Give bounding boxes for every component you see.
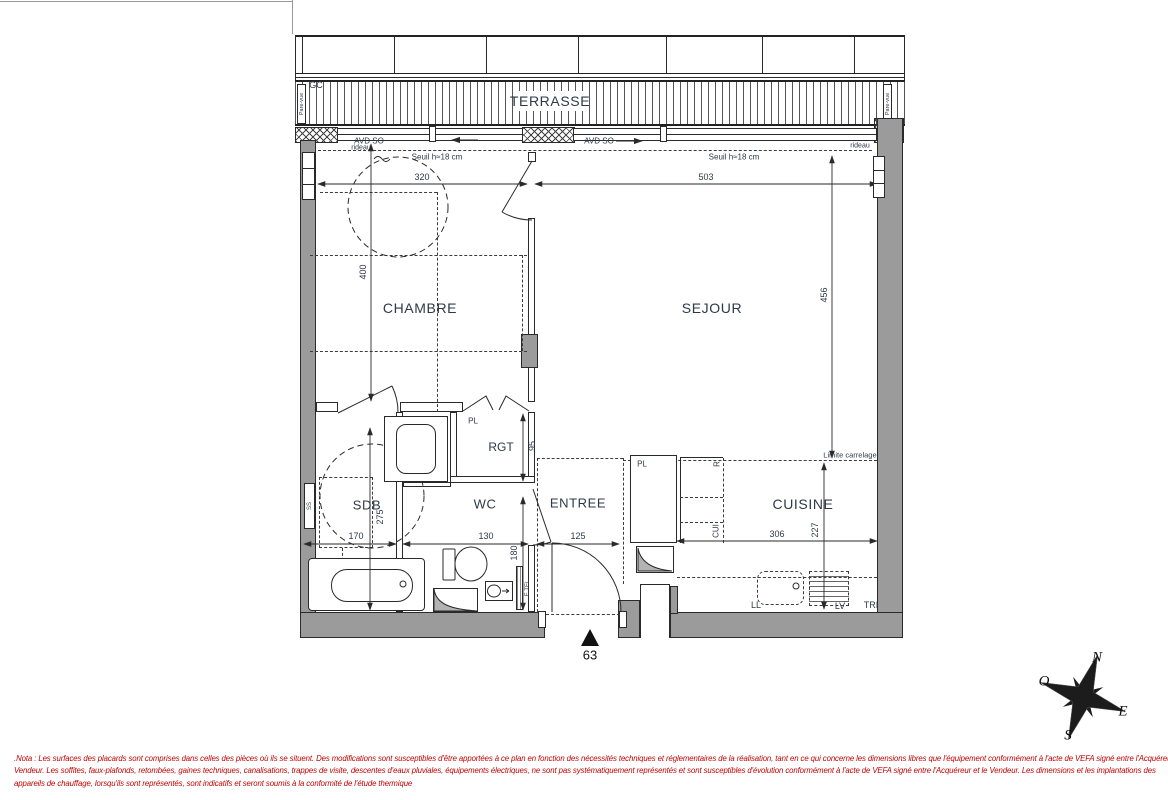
bathtub-inner [331, 569, 413, 602]
room-label-rgt: RGT [488, 440, 513, 454]
strip-divider [302, 35, 303, 73]
wc-handbasin [485, 581, 513, 601]
dim-label-320: 320 [414, 172, 429, 182]
gc-label: GC [309, 80, 323, 90]
partition-chambre-sejour [528, 218, 535, 402]
washbasin-bowl [396, 424, 436, 474]
room-label-chambre: CHAMBRE [383, 300, 457, 316]
partition-chambre-south-a [316, 402, 338, 412]
entrance-jamb-left [538, 611, 546, 628]
compass-rose [1026, 640, 1140, 754]
window-chambre-side-tick [303, 168, 314, 169]
nota-line-1: .Nota : Les surfaces des placards sont c… [14, 753, 1160, 765]
bay-window-chambre-mullion [429, 126, 436, 142]
electrical-panel-label: E.TEL [525, 580, 531, 597]
chambre-dashed-zone [522, 255, 523, 351]
nota-line-2: Vendeur. Les soffites, faux-plafonds, re… [14, 765, 1160, 777]
compass-star-major [1026, 640, 1140, 754]
window-chambre-side-tick [303, 184, 314, 185]
floor-plan-canvas: TERRASSE GC Pare-vue Pare-vue AVD SO rid… [0, 0, 1168, 800]
seuil-label-left: Seuil h≈18 cm [412, 153, 463, 162]
bin-label: TRI [864, 600, 879, 610]
wall-bottom-right [670, 612, 903, 638]
dim-label-95: 95 [527, 441, 537, 451]
kitchen-sink [757, 571, 804, 605]
bay-window-sejour-rail [573, 134, 877, 135]
room-label-wc: WC [474, 497, 497, 512]
counter-label: CUI [712, 524, 721, 538]
compass-star-minor [1053, 667, 1113, 727]
door-sdb-leaf [338, 386, 392, 413]
room-label-terrasse: TERRASSE [510, 93, 590, 109]
dim-label-275: 275 [375, 509, 385, 524]
nota-disclaimer: .Nota : Les surfaces des placards sont c… [14, 753, 1160, 790]
chambre-dashed-zone [310, 255, 527, 256]
seuil-squiggle [374, 157, 390, 162]
fridge-shelf-dashed [680, 497, 723, 498]
dim-label-180: 180 [509, 545, 519, 560]
terrace-edge-line [295, 77, 905, 78]
toilet-bowl [455, 547, 487, 581]
pare-vue-label-left: Pare-vue [299, 93, 305, 115]
terrace-railing [295, 80, 905, 126]
partition-rgt-left [450, 412, 457, 482]
strip-divider [578, 35, 579, 73]
dimension-lines [304, 144, 877, 610]
dim-label-400: 400 [358, 264, 368, 279]
dim-label-170: 170 [348, 531, 363, 541]
strip-divider [486, 35, 487, 73]
dim-label-130: 130 [478, 531, 493, 541]
window-chambre-side [302, 152, 315, 200]
radiator-kitchen [636, 546, 674, 573]
electrical-panel [516, 566, 523, 610]
window-sejour-side [873, 156, 885, 198]
room-label-cuisine: CUISINE [773, 496, 834, 512]
door-jamb-cap [528, 152, 536, 162]
tile-limit-label: Limite carrelage. [823, 451, 878, 460]
service-niche [640, 584, 670, 638]
strip-divider [854, 35, 855, 73]
toilet-tank [443, 549, 455, 580]
entree-dashed-boundary [623, 458, 624, 584]
fridge-label: R [713, 461, 722, 467]
facade-wall-hatch-mid [522, 127, 575, 143]
door-entrance-arc [552, 543, 621, 612]
room-label-sejour: SEJOUR [682, 300, 742, 316]
radiator-wc [433, 588, 478, 612]
towel-dryer-label: SS [307, 502, 313, 510]
entrance-threshold-dashed [546, 614, 620, 615]
closet-label-rgt: PL [468, 417, 478, 426]
partition-under-basin [403, 482, 451, 487]
fridge-column-left [680, 458, 681, 543]
pare-vue-label-right: Pare-vue [885, 93, 891, 115]
strip-divider [394, 35, 395, 73]
window-sejour-side-tick [874, 183, 884, 184]
closet-label-cuisine: PL [637, 460, 647, 469]
compass-east-label: E [1118, 704, 1127, 721]
partition-chambre-south-b [400, 402, 463, 412]
folding-door-rgt [463, 396, 529, 411]
wall-bottom-left [300, 612, 545, 638]
washer-label: LL [751, 600, 761, 610]
nota-line-3: appareils de chauffage, lorsqu'ils sont … [14, 778, 1160, 790]
fridge-shelf-dashed [680, 522, 723, 523]
wall-kitchen-stub [670, 586, 678, 614]
door-chambre-leaf [502, 161, 532, 212]
partition-rgt-bottom [450, 476, 535, 483]
window-sejour-side-tick [874, 170, 884, 171]
sheet-edge-top [0, 1, 292, 2]
strip-divider [762, 35, 763, 73]
rideau-label-right: rideau [850, 143, 869, 150]
upper-floor-strip [295, 35, 905, 74]
dim-label-456: 456 [819, 287, 829, 302]
dim-label-125: 125 [570, 531, 585, 541]
entrance-triangle [581, 629, 599, 646]
turning-circle-chambre [348, 157, 448, 257]
dim-label-503: 503 [698, 172, 713, 182]
dim-label-306: 306 [769, 529, 784, 539]
chambre-dashed-zone [310, 351, 527, 352]
entree-dashed-boundary [537, 458, 538, 612]
fridge-column-right-dashed [723, 458, 724, 543]
strip-divider [666, 35, 667, 73]
room-label-entree: ENTREE [550, 496, 606, 511]
dishwasher-label: LV [835, 601, 845, 611]
chambre-dashed-zone [320, 192, 437, 193]
compass-north-label: N [1092, 650, 1102, 667]
door-sdb-arc [392, 386, 398, 413]
bay-window-sejour-mullion [660, 126, 667, 142]
avd-so-label-right: AVD SO [584, 137, 614, 146]
unit-number-label: 63 [583, 648, 597, 663]
door-wc-arc [533, 542, 551, 545]
seuil-label-right: Seuil h≈18 cm [709, 153, 760, 162]
dim-label-227: 227 [810, 522, 820, 537]
compass-west-label: O [1039, 674, 1050, 691]
sdb-dashed-zone [319, 477, 373, 548]
door-wc-leaf [533, 489, 551, 542]
curtain-track-dashed [318, 150, 872, 151]
compass-south-label: S [1064, 728, 1072, 745]
fridge-column-top [680, 457, 723, 458]
entrance-jamb-right [619, 611, 627, 628]
entree-dashed-boundary [537, 458, 623, 459]
sheet-edge-side [292, 0, 293, 34]
